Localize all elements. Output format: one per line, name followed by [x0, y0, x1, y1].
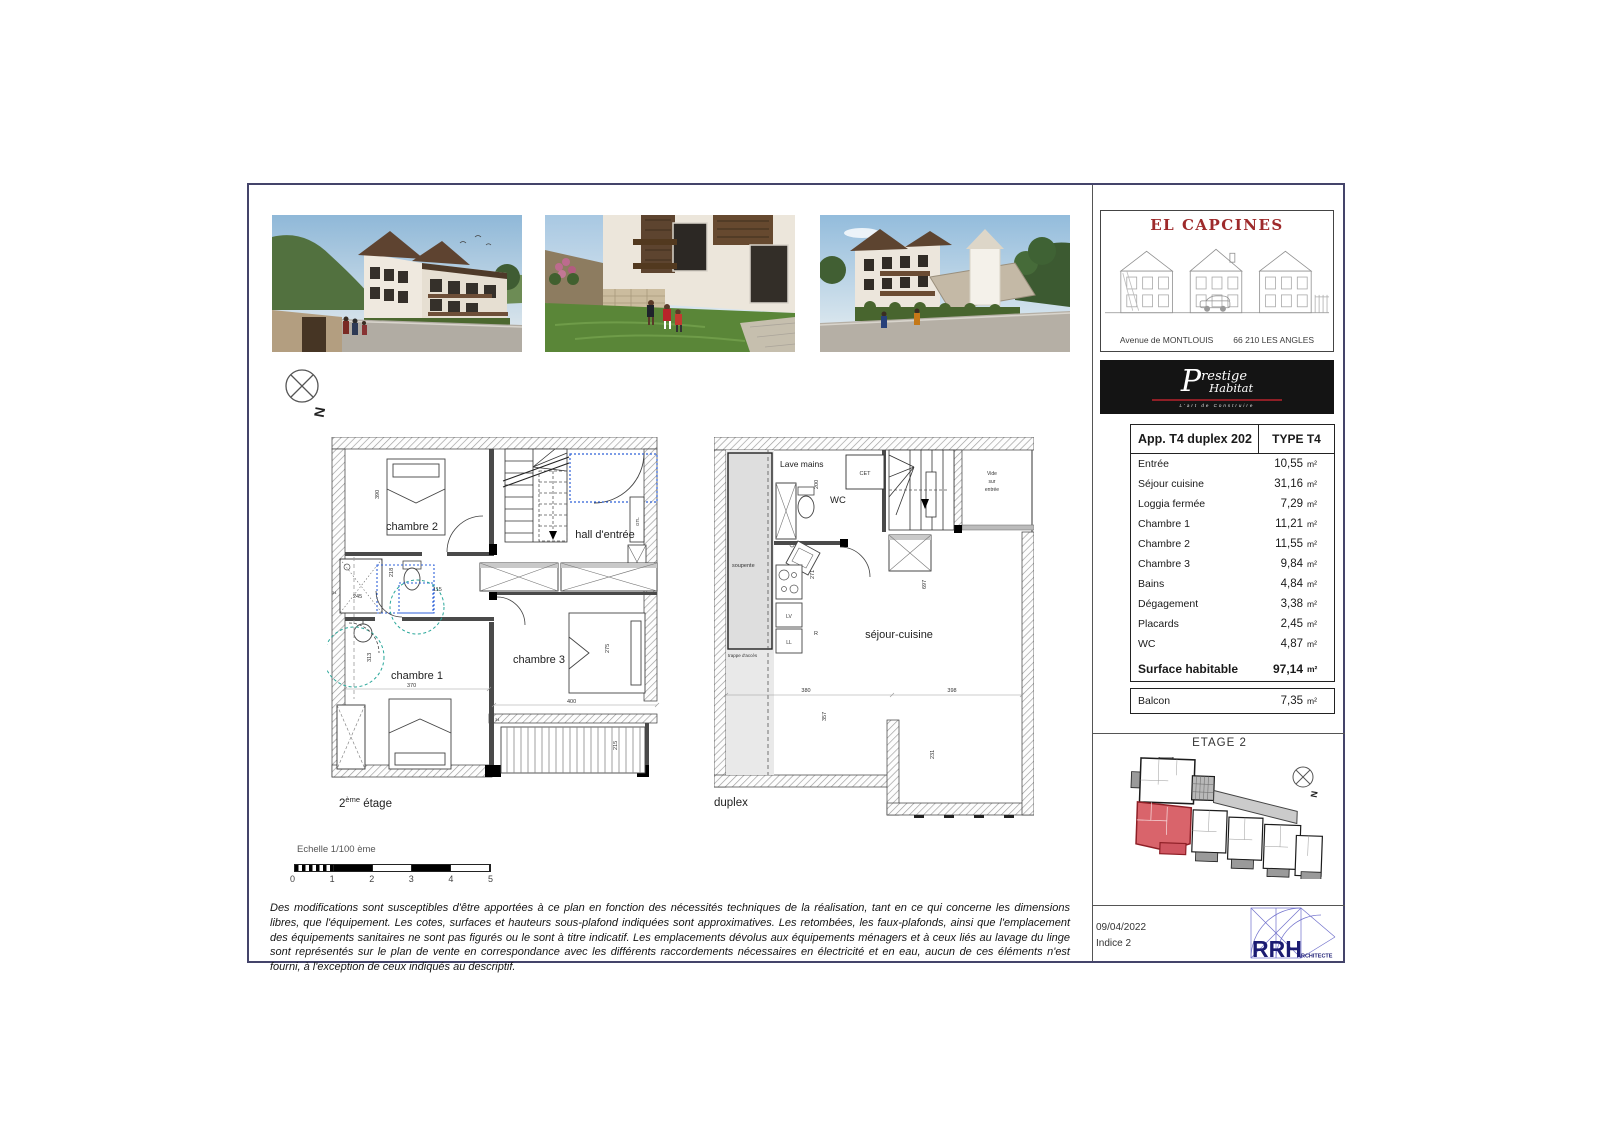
row-unit: m²: [1303, 459, 1327, 469]
dim-34-left: 34: [332, 590, 337, 595]
issue-date: 09/04/2022: [1096, 920, 1146, 936]
row-value: 7,29: [1261, 498, 1303, 510]
scale-tick: 2: [369, 874, 374, 884]
row-label: Placards: [1138, 618, 1261, 630]
caption-duplex: duplex: [714, 797, 748, 809]
scale-seg: [451, 865, 490, 871]
row-value: 11,21: [1261, 518, 1303, 530]
bed-chambre1: [389, 699, 451, 769]
dim-275: 275: [605, 644, 611, 653]
address-city: 66 210 LES ANGLES: [1233, 335, 1314, 345]
compass-north-label: N: [1308, 790, 1319, 798]
row-unit: m²: [1303, 519, 1327, 529]
room-label-sejour: séjour-cuisine: [865, 629, 933, 641]
scale-seg: [334, 865, 373, 871]
scale-seg: [412, 865, 451, 871]
building-sketch: [1103, 237, 1331, 329]
sketch-car: [1200, 296, 1230, 312]
scale-ticks: 0 1 2 3 4 5: [290, 874, 493, 884]
divider-footer: [1092, 905, 1345, 906]
room-label-chambre2: chambre 2: [386, 521, 438, 533]
balcony: [501, 727, 645, 773]
stair-closet: [889, 535, 931, 571]
row-unit: m²: [1303, 664, 1327, 674]
row-label: Bains: [1138, 578, 1261, 590]
row-label: WC: [1138, 638, 1261, 650]
brand-tagline: L'art de Construire: [1180, 403, 1255, 408]
table-row: Placards2,45m²: [1131, 614, 1334, 634]
row-value: 10,55: [1261, 458, 1303, 470]
caption-sup: ème: [345, 795, 360, 804]
dim-697: 697: [922, 580, 928, 589]
wardrobe: [337, 705, 365, 769]
dim-313: 313: [367, 653, 373, 662]
scale-bar: [294, 864, 491, 872]
page: { "compass": {"north": "N"}, "title_bloc…: [0, 0, 1600, 1131]
architect-logo-subtext: ARCHITECTE: [1297, 954, 1333, 960]
scale-tick: 1: [330, 874, 335, 884]
label-ll: LL: [786, 640, 792, 646]
brand-rule: [1152, 399, 1282, 401]
table-total-row: Surface habitable97,14m²: [1131, 654, 1334, 683]
room-label-hall: hall d'entrée: [575, 529, 635, 541]
row-value: 4,84: [1261, 578, 1303, 590]
dim-370: 370: [407, 683, 416, 689]
total-label: Surface habitable: [1138, 662, 1261, 676]
dim-398: 398: [947, 688, 956, 694]
table-header-left: App. T4 duplex 202: [1131, 425, 1259, 453]
table-row: Bains4,84m²: [1131, 574, 1334, 594]
compass-north-label: N: [311, 406, 329, 419]
staircase: [889, 450, 954, 530]
staircase: [503, 449, 569, 542]
disclaimer-text: Des modifications sont susceptibles d'êt…: [270, 901, 1070, 975]
gtl-label: GTL: [635, 517, 640, 526]
divider-etage: [1092, 733, 1345, 734]
dim-357: 357: [822, 712, 828, 721]
row-unit: m²: [1303, 639, 1327, 649]
table-row: Loggia fermée7,29m²: [1131, 494, 1334, 514]
address-street: Avenue de MONTLOUIS: [1120, 335, 1213, 345]
scale-tick: 3: [409, 874, 414, 884]
render-photo-garden-art: [545, 215, 795, 352]
project-title-block: EL CAPCINES: [1100, 210, 1334, 352]
soupente-zone: soupente trappe d'accès: [726, 450, 774, 775]
row-label: Loggia fermée: [1138, 498, 1261, 510]
label-wc: WC: [830, 495, 846, 506]
trappe-label: trappe d'accès: [728, 653, 758, 658]
row-value: 31,16: [1261, 478, 1303, 490]
row-value: 3,38: [1261, 598, 1303, 610]
vide-edge: [962, 525, 1034, 530]
table-row: Dégagement3,38m²: [1131, 594, 1334, 614]
row-unit: m²: [1303, 579, 1327, 589]
row-unit: m²: [1303, 619, 1327, 629]
window-ticks: [914, 815, 1014, 818]
row-value: 4,87: [1261, 638, 1303, 650]
table-row: Séjour cuisine31,16m²: [1131, 474, 1334, 494]
row-unit: m²: [1303, 499, 1327, 509]
room-label-chambre3: chambre 3: [513, 654, 565, 666]
row-label: Entrée: [1138, 458, 1261, 470]
brand-line2: Habitat: [1209, 383, 1253, 395]
plan-sheet: N: [247, 183, 1345, 963]
render-photo-garden: [545, 215, 795, 352]
balcony-row: Balcon 7,35 m²: [1130, 688, 1335, 714]
table-header-right: TYPE T4: [1259, 432, 1334, 446]
soupente-label: soupente: [732, 563, 755, 569]
dim-400: 400: [567, 699, 576, 705]
row-label: Séjour cuisine: [1138, 478, 1261, 490]
date-block: 09/04/2022 Indice 2: [1096, 920, 1146, 952]
dim-271: 271: [810, 570, 816, 579]
entry-door-arc: [594, 453, 644, 503]
floor-plan-duplex: soupente trappe d'accès: [714, 437, 1034, 822]
room-label-chambre1: chambre 1: [391, 670, 443, 682]
row-value: 11,55: [1261, 538, 1303, 550]
table-row: Chambre 39,84m²: [1131, 554, 1334, 574]
etage-title: ETAGE 2: [1092, 737, 1347, 749]
scale-tick: 0: [290, 874, 295, 884]
hall-closets: [480, 563, 657, 591]
brand-initial: P: [1181, 367, 1201, 397]
brand-logo-block: P restige Habitat L'art de Construire: [1100, 360, 1334, 414]
brand-logo: P restige Habitat: [1181, 367, 1253, 397]
right-column-divider: [1092, 185, 1093, 961]
dim-34-balcony: 34: [495, 717, 500, 722]
compass-icon-small: N: [1289, 763, 1323, 807]
row-unit: m²: [1303, 539, 1327, 549]
row-unit: m²: [1303, 599, 1327, 609]
dim-231: 231: [930, 750, 936, 759]
row-value: 2,45: [1261, 618, 1303, 630]
row-label: Chambre 2: [1138, 538, 1261, 550]
total-value: 97,14: [1261, 662, 1303, 676]
dim-115: 115: [433, 587, 442, 593]
scale-seg: [373, 865, 412, 871]
scale-tick: 4: [448, 874, 453, 884]
balcony-label: Balcon: [1138, 695, 1261, 707]
row-label: Dégagement: [1138, 598, 1261, 610]
render-photo-street-right-art: [820, 215, 1070, 352]
architect-logo-text: RRH: [1252, 936, 1302, 959]
label-lave-mains: Lave mains: [780, 459, 823, 469]
table-row: WC4,87m²: [1131, 634, 1334, 654]
caption-rest: étage: [360, 798, 392, 810]
label-cet: CET: [860, 471, 872, 477]
floor-plan-2eme-etage: GTL: [327, 437, 662, 782]
balcony-value: 7,35: [1261, 695, 1303, 707]
scale-seg: [295, 865, 334, 871]
table-row: Chambre 211,55m²: [1131, 534, 1334, 554]
row-unit: m²: [1303, 696, 1327, 706]
label-r: R: [814, 631, 818, 637]
dim-218: 218: [389, 568, 395, 577]
compass-icon: N: [279, 363, 335, 425]
label-vide-2: sur: [989, 479, 996, 485]
architect-logo: RRH ARCHITECTE: [1237, 907, 1337, 959]
table-row: Entrée10,55m²: [1131, 454, 1334, 474]
dim-245: 245: [353, 594, 362, 600]
row-unit: m²: [1303, 559, 1327, 569]
dim-390: 390: [375, 490, 381, 499]
label-vide-3: entrée: [985, 487, 999, 493]
scale-tick: 5: [488, 874, 493, 884]
render-photo-street-right: [820, 215, 1070, 352]
issue-indice: Indice 2: [1096, 936, 1146, 952]
dim-380: 380: [801, 688, 810, 694]
row-label: Chambre 1: [1138, 518, 1261, 530]
dim-215: 215: [613, 741, 619, 750]
table-row: Chambre 111,21m²: [1131, 514, 1334, 534]
scale-label: Echelle 1/100 ème: [297, 844, 376, 855]
render-photo-street-left: [272, 215, 522, 352]
dim-200: 200: [814, 480, 820, 489]
row-value: 9,84: [1261, 558, 1303, 570]
project-address: Avenue de MONTLOUIS 66 210 LES ANGLES: [1101, 335, 1333, 345]
render-photo-street-left-art: [272, 215, 522, 352]
table-header: App. T4 duplex 202 TYPE T4: [1131, 425, 1334, 454]
apartment-surface-table: App. T4 duplex 202 TYPE T4 Entrée10,55m²…: [1130, 424, 1335, 682]
caption-2eme-etage: 2ème étage: [339, 795, 392, 810]
project-title: EL CAPCINES: [1101, 216, 1333, 234]
label-lv: LV: [786, 614, 792, 620]
label-vide-1: Vide: [987, 471, 997, 477]
row-label: Chambre 3: [1138, 558, 1261, 570]
row-unit: m²: [1303, 479, 1327, 489]
